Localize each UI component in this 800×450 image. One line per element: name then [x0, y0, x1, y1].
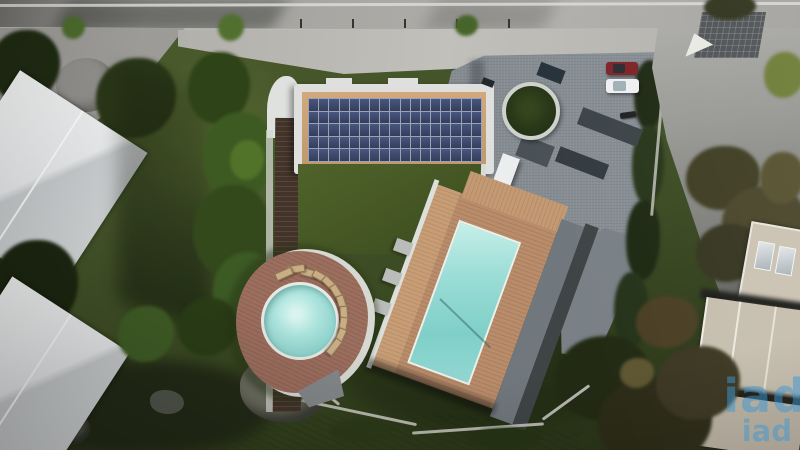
- solar-panel: [370, 137, 379, 149]
- solar-panel: [319, 112, 328, 124]
- solar-panel: [401, 137, 410, 149]
- solar-panel: [350, 137, 359, 149]
- solar-panel: [451, 137, 460, 149]
- solar-panel: [411, 149, 420, 161]
- solar-panel-grid: [308, 98, 482, 162]
- solar-panel: [329, 149, 338, 161]
- solar-panel: [309, 99, 318, 111]
- solar-panel: [462, 99, 471, 111]
- solar-panel: [360, 137, 369, 149]
- solar-panel: [319, 99, 328, 111]
- rock: [150, 390, 184, 414]
- solar-panel: [319, 149, 328, 161]
- solar-panel: [401, 149, 410, 161]
- solar-panel: [441, 137, 450, 149]
- solar-panel: [329, 99, 338, 111]
- fence-post: [404, 19, 406, 28]
- solar-panel: [350, 112, 359, 124]
- solar-panel: [451, 99, 460, 111]
- solar-panel: [421, 137, 430, 149]
- roof-ridge: [0, 111, 84, 253]
- solar-panel: [411, 99, 420, 111]
- solar-panel: [329, 124, 338, 136]
- tree: [96, 58, 176, 138]
- solar-panel: [350, 124, 359, 136]
- solar-panel: [350, 99, 359, 111]
- solar-panel: [451, 149, 460, 161]
- solar-panel: [390, 99, 399, 111]
- tree: [118, 306, 174, 362]
- roof-notch: [388, 78, 418, 86]
- solar-panel: [421, 124, 430, 136]
- car-white: [606, 79, 639, 93]
- solar-panel: [390, 149, 399, 161]
- solar-panel: [411, 137, 420, 149]
- solar-panel: [340, 137, 349, 149]
- solar-panel: [380, 124, 389, 136]
- solar-panel: [472, 112, 481, 124]
- fence-post: [352, 19, 354, 28]
- solar-panel: [329, 112, 338, 124]
- solar-panel: [462, 112, 471, 124]
- solar-panel: [350, 149, 359, 161]
- solar-panel: [340, 112, 349, 124]
- solar-panel: [472, 124, 481, 136]
- site-plan-render: iad iad: [0, 0, 800, 450]
- solar-panel: [431, 99, 440, 111]
- roof-notch: [326, 78, 352, 86]
- car-windshield: [613, 64, 625, 73]
- solar-panel: [329, 137, 338, 149]
- fence-post: [300, 19, 302, 28]
- solar-panel: [421, 149, 430, 161]
- car-windshield: [613, 81, 626, 91]
- solar-panel: [309, 124, 318, 136]
- solar-panel: [462, 137, 471, 149]
- solar-panel: [309, 149, 318, 161]
- solar-panel: [390, 137, 399, 149]
- solar-panel: [340, 99, 349, 111]
- solar-panel: [390, 112, 399, 124]
- solar-panel: [370, 112, 379, 124]
- solar-panel: [360, 112, 369, 124]
- car-red: [606, 62, 638, 75]
- solar-panel: [340, 149, 349, 161]
- solar-panel: [380, 112, 389, 124]
- solar-panel: [451, 112, 460, 124]
- solar-panel: [380, 137, 389, 149]
- solar-panel: [441, 99, 450, 111]
- tree: [760, 152, 800, 204]
- tree: [636, 296, 698, 348]
- solar-panel: [370, 99, 379, 111]
- solar-panel: [390, 124, 399, 136]
- solar-panel: [441, 112, 450, 124]
- solar-panel: [462, 124, 471, 136]
- solar-panel: [360, 124, 369, 136]
- hedge: [626, 200, 660, 280]
- solar-panel: [431, 112, 440, 124]
- solar-panel: [380, 149, 389, 161]
- solar-panel: [472, 99, 481, 111]
- roof-ridge: [0, 314, 72, 450]
- solar-panel: [411, 112, 420, 124]
- solar-panel: [451, 124, 460, 136]
- solar-panel: [441, 149, 450, 161]
- solar-panel: [309, 112, 318, 124]
- solar-panel: [319, 124, 328, 136]
- solar-panel: [370, 124, 379, 136]
- solar-panel: [401, 99, 410, 111]
- roof-ridge: [762, 307, 776, 394]
- solar-panel: [380, 99, 389, 111]
- solar-panel: [431, 137, 440, 149]
- circular-planter: [502, 82, 560, 140]
- solar-panel: [360, 149, 369, 161]
- solar-panel: [411, 124, 420, 136]
- solar-panel: [319, 137, 328, 149]
- solar-panel: [421, 99, 430, 111]
- solar-panel: [401, 124, 410, 136]
- fence-post: [508, 19, 510, 28]
- solar-panel: [431, 124, 440, 136]
- tree: [764, 52, 800, 98]
- solar-panel: [401, 112, 410, 124]
- solar-panel: [309, 137, 318, 149]
- solar-panel: [340, 124, 349, 136]
- solar-panel: [360, 99, 369, 111]
- solar-panel: [431, 149, 440, 161]
- solar-panel: [370, 149, 379, 161]
- solar-panel: [472, 137, 481, 149]
- solar-panel: [421, 112, 430, 124]
- solar-panel: [462, 149, 471, 161]
- solar-panel: [441, 124, 450, 136]
- solar-panel: [472, 149, 481, 161]
